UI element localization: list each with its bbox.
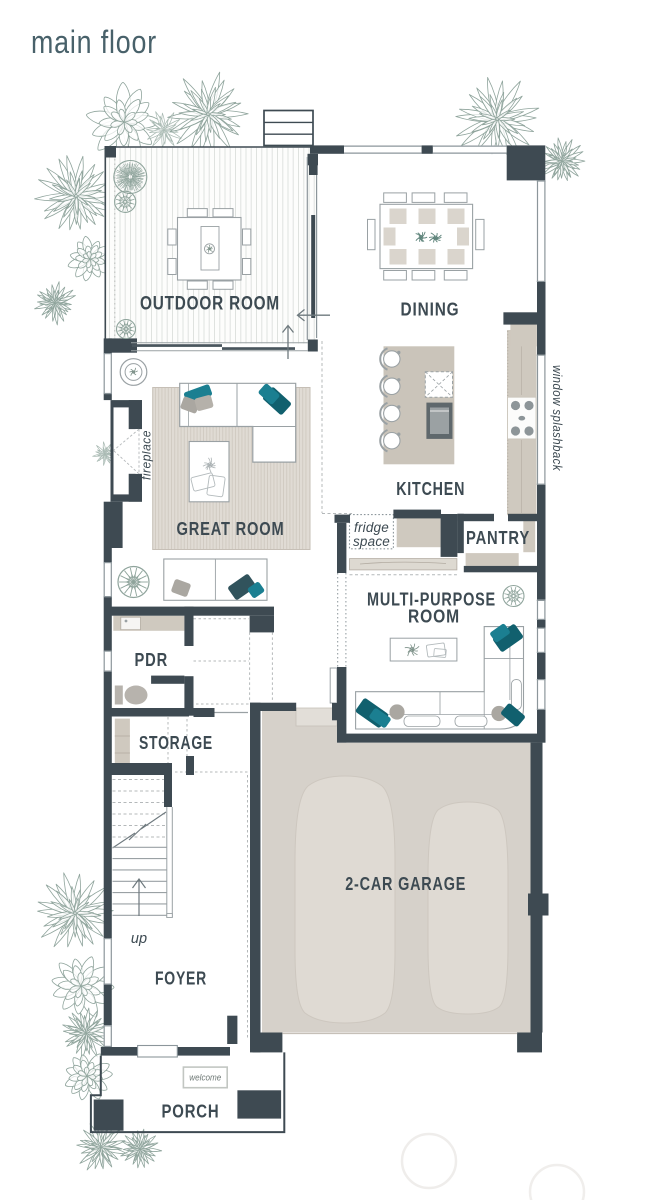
svg-text:GREAT ROOM: GREAT ROOM xyxy=(177,519,285,539)
svg-text:PDR: PDR xyxy=(135,650,169,670)
svg-text:fridge: fridge xyxy=(354,520,389,535)
svg-text:STORAGE: STORAGE xyxy=(139,733,213,753)
svg-text:space: space xyxy=(353,534,390,549)
svg-text:FOYER: FOYER xyxy=(155,969,207,989)
svg-text:OUTDOOR ROOM: OUTDOOR ROOM xyxy=(140,294,280,315)
svg-text:2-CAR GARAGE: 2-CAR GARAGE xyxy=(345,874,466,894)
svg-text:main floor: main floor xyxy=(31,24,157,60)
svg-text:PANTRY: PANTRY xyxy=(466,528,530,548)
svg-text:KITCHEN: KITCHEN xyxy=(396,479,465,499)
svg-text:PORCH: PORCH xyxy=(162,1102,220,1122)
svg-text:window splashback: window splashback xyxy=(550,365,564,471)
svg-text:up: up xyxy=(131,931,147,947)
svg-text:DINING: DINING xyxy=(401,300,460,320)
svg-text:ROOM: ROOM xyxy=(408,607,460,627)
svg-text:welcome: welcome xyxy=(189,1073,221,1083)
